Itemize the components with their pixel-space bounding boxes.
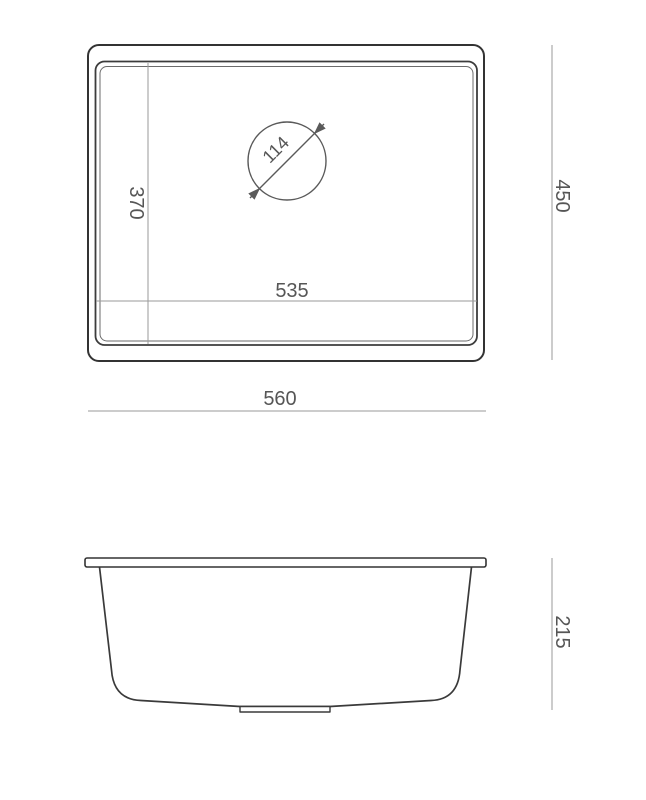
dim-label-height: 215 <box>551 615 573 648</box>
dim-label-outer-width: 560 <box>263 388 296 410</box>
sink-rim-profile <box>85 558 486 567</box>
dim-label-inner-width: 535 <box>275 280 308 302</box>
dim-label-inner-height: 370 <box>125 186 147 219</box>
sink-bowl-profile <box>100 567 472 707</box>
technical-drawing-page: 370 535 114 450 560 215 <box>0 0 646 800</box>
sink-technical-drawing: 370 535 114 450 560 215 <box>0 0 646 800</box>
top-view: 370 535 114 450 560 <box>88 45 573 411</box>
dim-label-outer-height: 450 <box>551 179 573 212</box>
drain-flange <box>240 707 330 713</box>
front-view: 215 <box>85 558 573 712</box>
